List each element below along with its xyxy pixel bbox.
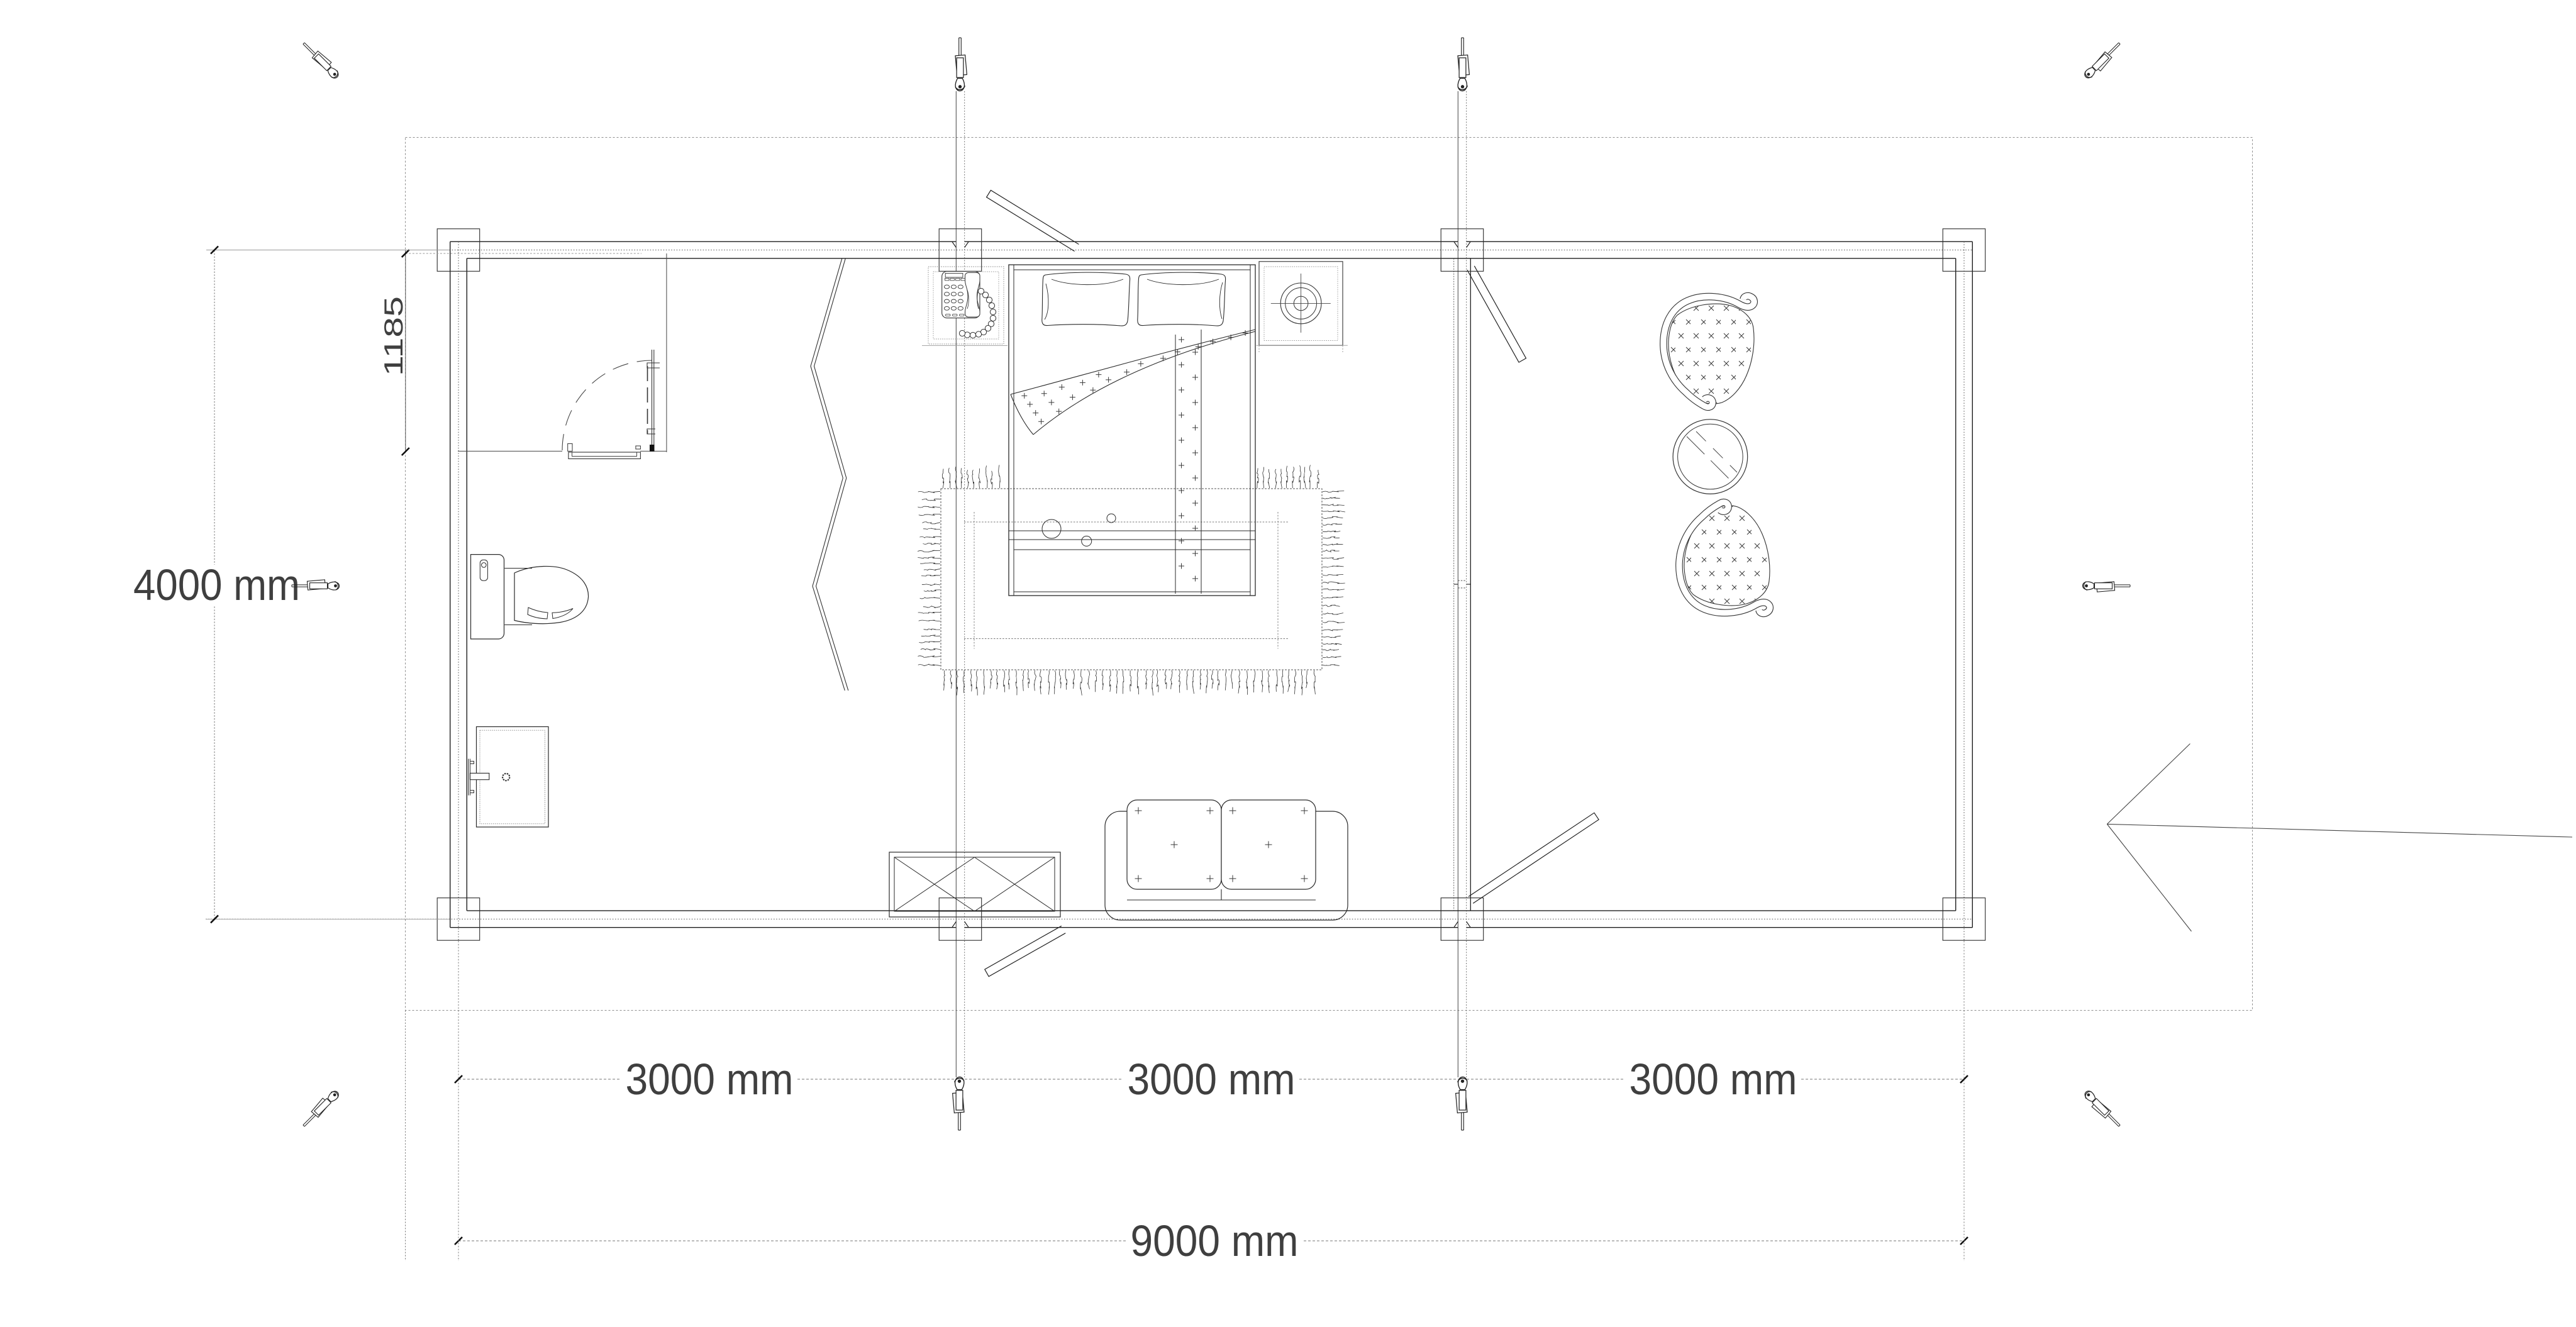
svg-text:3000 mm: 3000 mm [626, 1055, 794, 1104]
svg-text:3000 mm: 3000 mm [1629, 1055, 1797, 1104]
svg-text:9000 mm: 9000 mm [1131, 1216, 1299, 1265]
svg-text:4000 mm: 4000 mm [133, 560, 300, 609]
svg-text:1185: 1185 [379, 296, 408, 376]
svg-text:3000 mm: 3000 mm [1128, 1055, 1296, 1104]
